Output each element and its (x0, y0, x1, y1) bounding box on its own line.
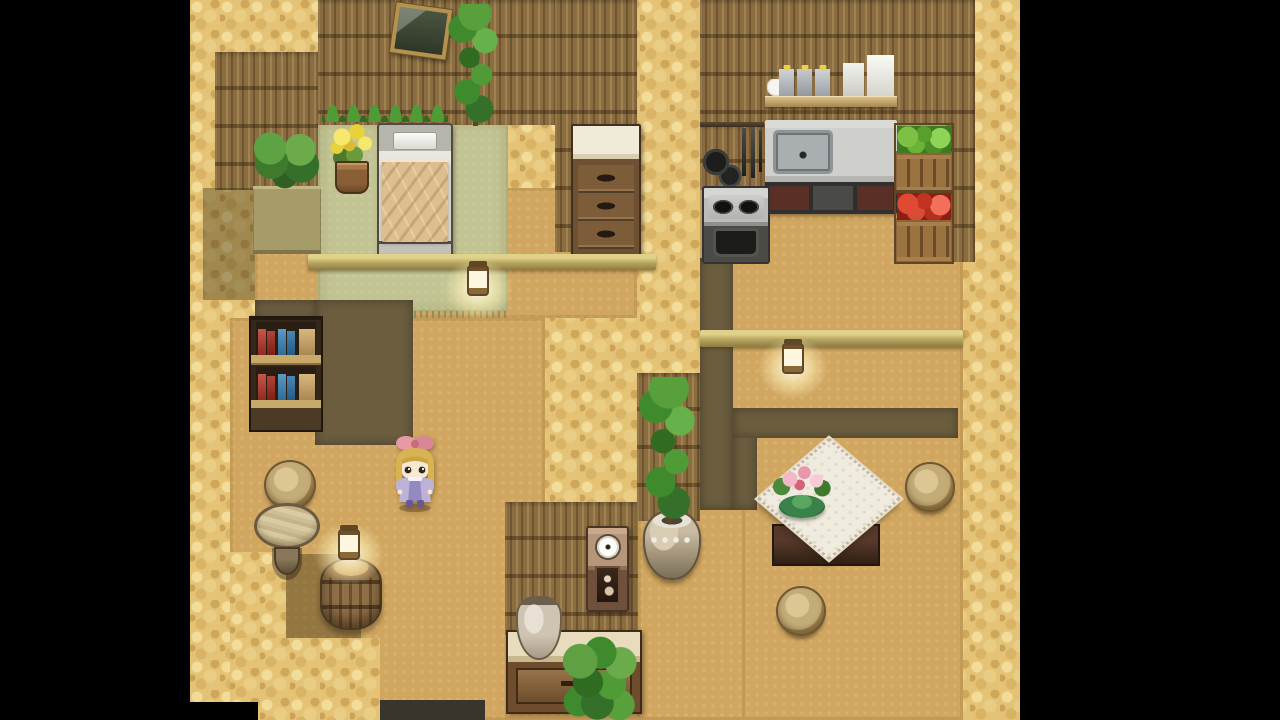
letterbox-left (0, 0, 190, 720)
barrel-lantern (328, 520, 370, 580)
bedroom-lantern (458, 256, 498, 314)
wall-grass (322, 84, 448, 122)
climbing-vine (639, 377, 699, 523)
flower-centerpiece (772, 462, 832, 520)
yellow-flower-pot (327, 124, 377, 194)
utensil-rack (700, 120, 764, 190)
south-floor-shadow (380, 700, 485, 720)
letterbox-right (1020, 0, 1280, 720)
vegetable-crate-red (894, 190, 954, 264)
game-viewport[interactable] (0, 0, 1280, 720)
west-wall-shadow (203, 188, 255, 300)
kitchen-shelf (765, 53, 897, 107)
bedroom-south-wall (315, 300, 413, 445)
sideboard-plant (563, 636, 641, 720)
dining-west-wall (700, 258, 733, 510)
potted-plants (251, 124, 319, 192)
sink-counter (765, 120, 897, 214)
wall-clock (586, 526, 629, 612)
stool-east (905, 462, 955, 512)
planter-ledge (253, 186, 321, 254)
bed (377, 123, 453, 259)
dining-lantern (772, 334, 814, 394)
picture-frame (390, 2, 452, 59)
dresser (571, 124, 641, 256)
stove (702, 186, 770, 264)
player-character[interactable] (388, 434, 442, 512)
potion-shelf (249, 316, 323, 432)
wall-vine (447, 4, 503, 126)
dining-inner-wall (733, 408, 958, 438)
doorway-gap (190, 702, 258, 720)
stool-south (776, 586, 826, 636)
vegetable-crate-green (894, 123, 954, 194)
